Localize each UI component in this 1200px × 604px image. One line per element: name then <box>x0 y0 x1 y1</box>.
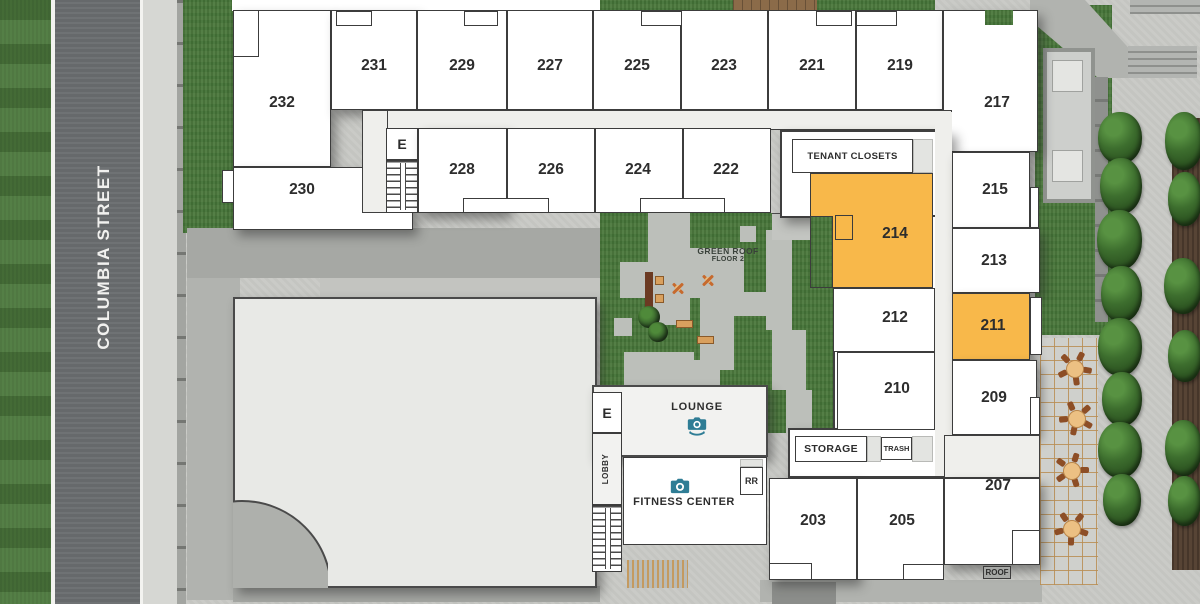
green-roof-label: GREEN ROOF <box>678 246 778 256</box>
corridor-vertical <box>935 112 952 476</box>
unit-closet <box>640 198 725 213</box>
unit-label-226: 226 <box>511 161 591 179</box>
street-name-label: COLUMBIA STREET <box>94 107 114 407</box>
bush <box>1168 172 1200 226</box>
closet-bay <box>740 459 763 467</box>
unit-label-207: 207 <box>958 477 1038 495</box>
courtyard-table <box>700 272 716 288</box>
unit-label-213: 213 <box>954 252 1034 270</box>
hedge <box>1101 266 1142 322</box>
unit-closet <box>222 170 234 203</box>
unit-label-210: 210 <box>857 380 937 398</box>
hedge <box>1103 474 1141 526</box>
unit-closet <box>463 198 549 213</box>
fitness-camera-icon[interactable] <box>669 477 691 496</box>
patio-table <box>1059 516 1083 540</box>
roof-access: ROOF <box>983 566 1011 579</box>
courtyard-path <box>700 292 772 316</box>
unit-label-214: 214 <box>855 225 935 243</box>
unit-closet <box>1012 530 1040 565</box>
lounge-label: LOUNGE <box>647 401 747 413</box>
unit-label-224: 224 <box>598 161 678 179</box>
paver-deck-south <box>627 560 688 588</box>
unit-label-217: 217 <box>957 94 1037 112</box>
courtyard-step-cover <box>811 216 833 287</box>
tenant-closets-label: TENANT CLOSETS <box>807 151 897 162</box>
courtyard-path <box>614 318 632 336</box>
unit-label-211: 211 <box>953 317 1033 335</box>
walkway-band-dark <box>187 228 607 278</box>
courtyard-table <box>670 280 686 296</box>
corridor-elbow <box>362 110 388 213</box>
utility-bay <box>867 436 881 462</box>
site-map-floor-2: COLUMBIA STREET <box>0 0 1200 604</box>
roof-label: ROOF <box>985 568 1008 577</box>
elevator-label: E <box>602 405 611 421</box>
bush <box>1168 330 1200 382</box>
unit-closet <box>769 563 812 580</box>
grass-strip-west <box>0 0 51 604</box>
restroom-label: RR <box>745 476 758 486</box>
hedge <box>1098 422 1142 478</box>
bush <box>1165 112 1200 170</box>
stairs-lobby <box>592 505 622 572</box>
hedge <box>1100 158 1142 214</box>
stairs-north <box>386 160 418 213</box>
utility-pad-south <box>772 582 836 604</box>
steps-northeast-corner <box>1130 0 1200 14</box>
patio-table <box>1064 406 1088 430</box>
unit-label-228: 228 <box>422 161 502 179</box>
grass-notch <box>985 10 1013 25</box>
unit-label-222: 222 <box>686 161 766 179</box>
elevator-label: E <box>397 136 406 152</box>
unit-closet <box>835 215 853 240</box>
bench <box>676 320 693 328</box>
corridor-east <box>944 435 1040 478</box>
bush <box>1168 476 1200 526</box>
sidewalk <box>143 0 177 604</box>
patio-table <box>1059 458 1083 482</box>
fitness-center-label: FITNESS CENTER <box>624 496 744 508</box>
steps-northeast <box>1128 46 1197 78</box>
utility-bay <box>912 436 933 462</box>
unit-label-231: 231 <box>334 57 414 75</box>
courtyard-path <box>786 390 812 433</box>
unit-label-215: 215 <box>955 181 1035 199</box>
unit-217[interactable] <box>943 10 1038 152</box>
tree <box>648 322 668 342</box>
bench <box>655 294 664 303</box>
hedge <box>1098 112 1142 164</box>
unit-label-203: 203 <box>773 512 853 530</box>
restroom: RR <box>740 467 763 495</box>
unit-closet <box>336 11 372 26</box>
green-roof-floor-label: FLOOR 2 <box>678 256 778 263</box>
bench <box>655 276 664 285</box>
elevator-lobby: E <box>592 392 622 433</box>
unit-closet <box>903 564 944 580</box>
lounge-360-camera-icon[interactable] <box>686 415 708 437</box>
lobby-label: LOBBY <box>601 445 613 493</box>
unit-label-221: 221 <box>772 57 852 75</box>
unit-closet <box>856 11 897 26</box>
courtyard-path <box>772 330 806 390</box>
unit-label-230: 230 <box>262 181 342 199</box>
unit-closet <box>464 11 498 26</box>
unit-label-212: 212 <box>855 309 935 327</box>
courtyard-path <box>624 352 694 385</box>
storage-label: STORAGE <box>804 443 858 455</box>
storage-room: STORAGE <box>795 436 867 462</box>
unit-label-229: 229 <box>422 57 502 75</box>
bush <box>1164 258 1200 314</box>
trash-label: TRASH <box>884 444 910 453</box>
bench <box>697 336 714 344</box>
hedge <box>1098 318 1142 376</box>
unit-label-225: 225 <box>597 57 677 75</box>
courtyard-path <box>740 226 756 242</box>
patio-table <box>1062 356 1086 380</box>
trash-room: TRASH <box>881 437 912 460</box>
elevator-north: E <box>386 128 418 160</box>
unit-label-219: 219 <box>860 57 940 75</box>
unit-closet <box>233 10 259 57</box>
hedge <box>1097 210 1142 270</box>
terrace-bench <box>1052 60 1083 92</box>
corridor <box>362 110 952 130</box>
terrace-bench <box>1052 150 1083 182</box>
bush <box>1165 420 1200 476</box>
roof-corner-cutout <box>233 500 328 588</box>
unit-closet <box>816 11 852 26</box>
unit-label-209: 209 <box>954 389 1034 407</box>
courtyard-path <box>690 360 720 386</box>
unit-label-205: 205 <box>862 512 942 530</box>
unit-label-223: 223 <box>684 57 764 75</box>
closet-bay <box>913 139 933 173</box>
tenant-closets: TENANT CLOSETS <box>792 139 913 173</box>
unit-label-227: 227 <box>510 57 590 75</box>
unit-label-232: 232 <box>242 94 322 112</box>
walkway-band-south <box>233 586 600 602</box>
hedge <box>1102 372 1142 426</box>
unit-closet <box>641 11 682 26</box>
courtyard-path <box>766 230 792 330</box>
